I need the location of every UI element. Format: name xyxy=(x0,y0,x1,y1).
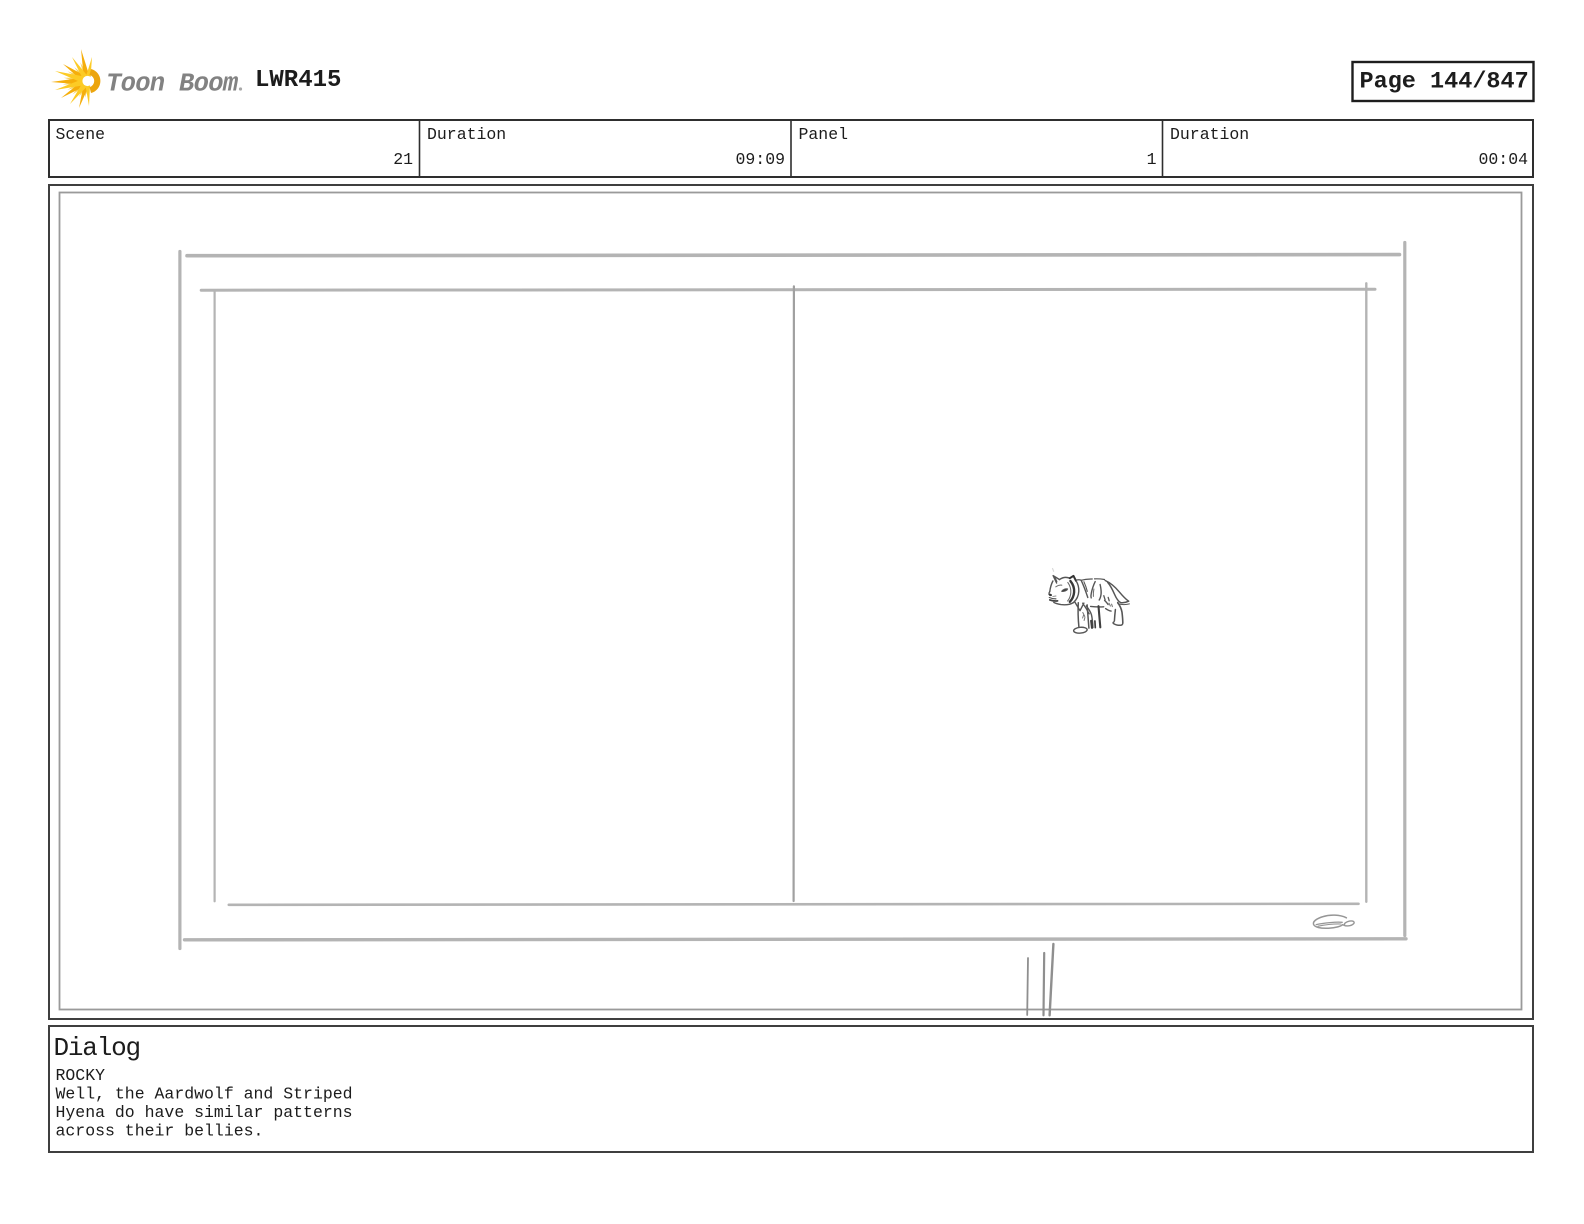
svg-text:09:09: 09:09 xyxy=(735,150,785,169)
svg-text:Panel: Panel xyxy=(799,125,849,144)
svg-text:21: 21 xyxy=(393,150,413,169)
svg-text:Scene: Scene xyxy=(56,125,106,144)
svg-text:ROCKY: ROCKY xyxy=(56,1066,106,1085)
svg-text:Toon Boom: Toon Boom xyxy=(106,70,239,99)
svg-text:Hyena do have similar patterns: Hyena do have similar patterns xyxy=(56,1103,353,1122)
svg-text:00:04: 00:04 xyxy=(1478,150,1528,169)
svg-text:Page 144/847: Page 144/847 xyxy=(1360,69,1529,96)
svg-text:1: 1 xyxy=(1147,150,1157,169)
svg-text:LWR415: LWR415 xyxy=(255,67,341,94)
svg-text:Duration: Duration xyxy=(1170,125,1249,144)
svg-text:Dialog: Dialog xyxy=(54,1033,140,1063)
svg-text:across their bellies.: across their bellies. xyxy=(56,1122,264,1141)
svg-text:Duration: Duration xyxy=(427,125,506,144)
svg-text:Well, the Aardwolf and Striped: Well, the Aardwolf and Striped xyxy=(56,1085,353,1104)
